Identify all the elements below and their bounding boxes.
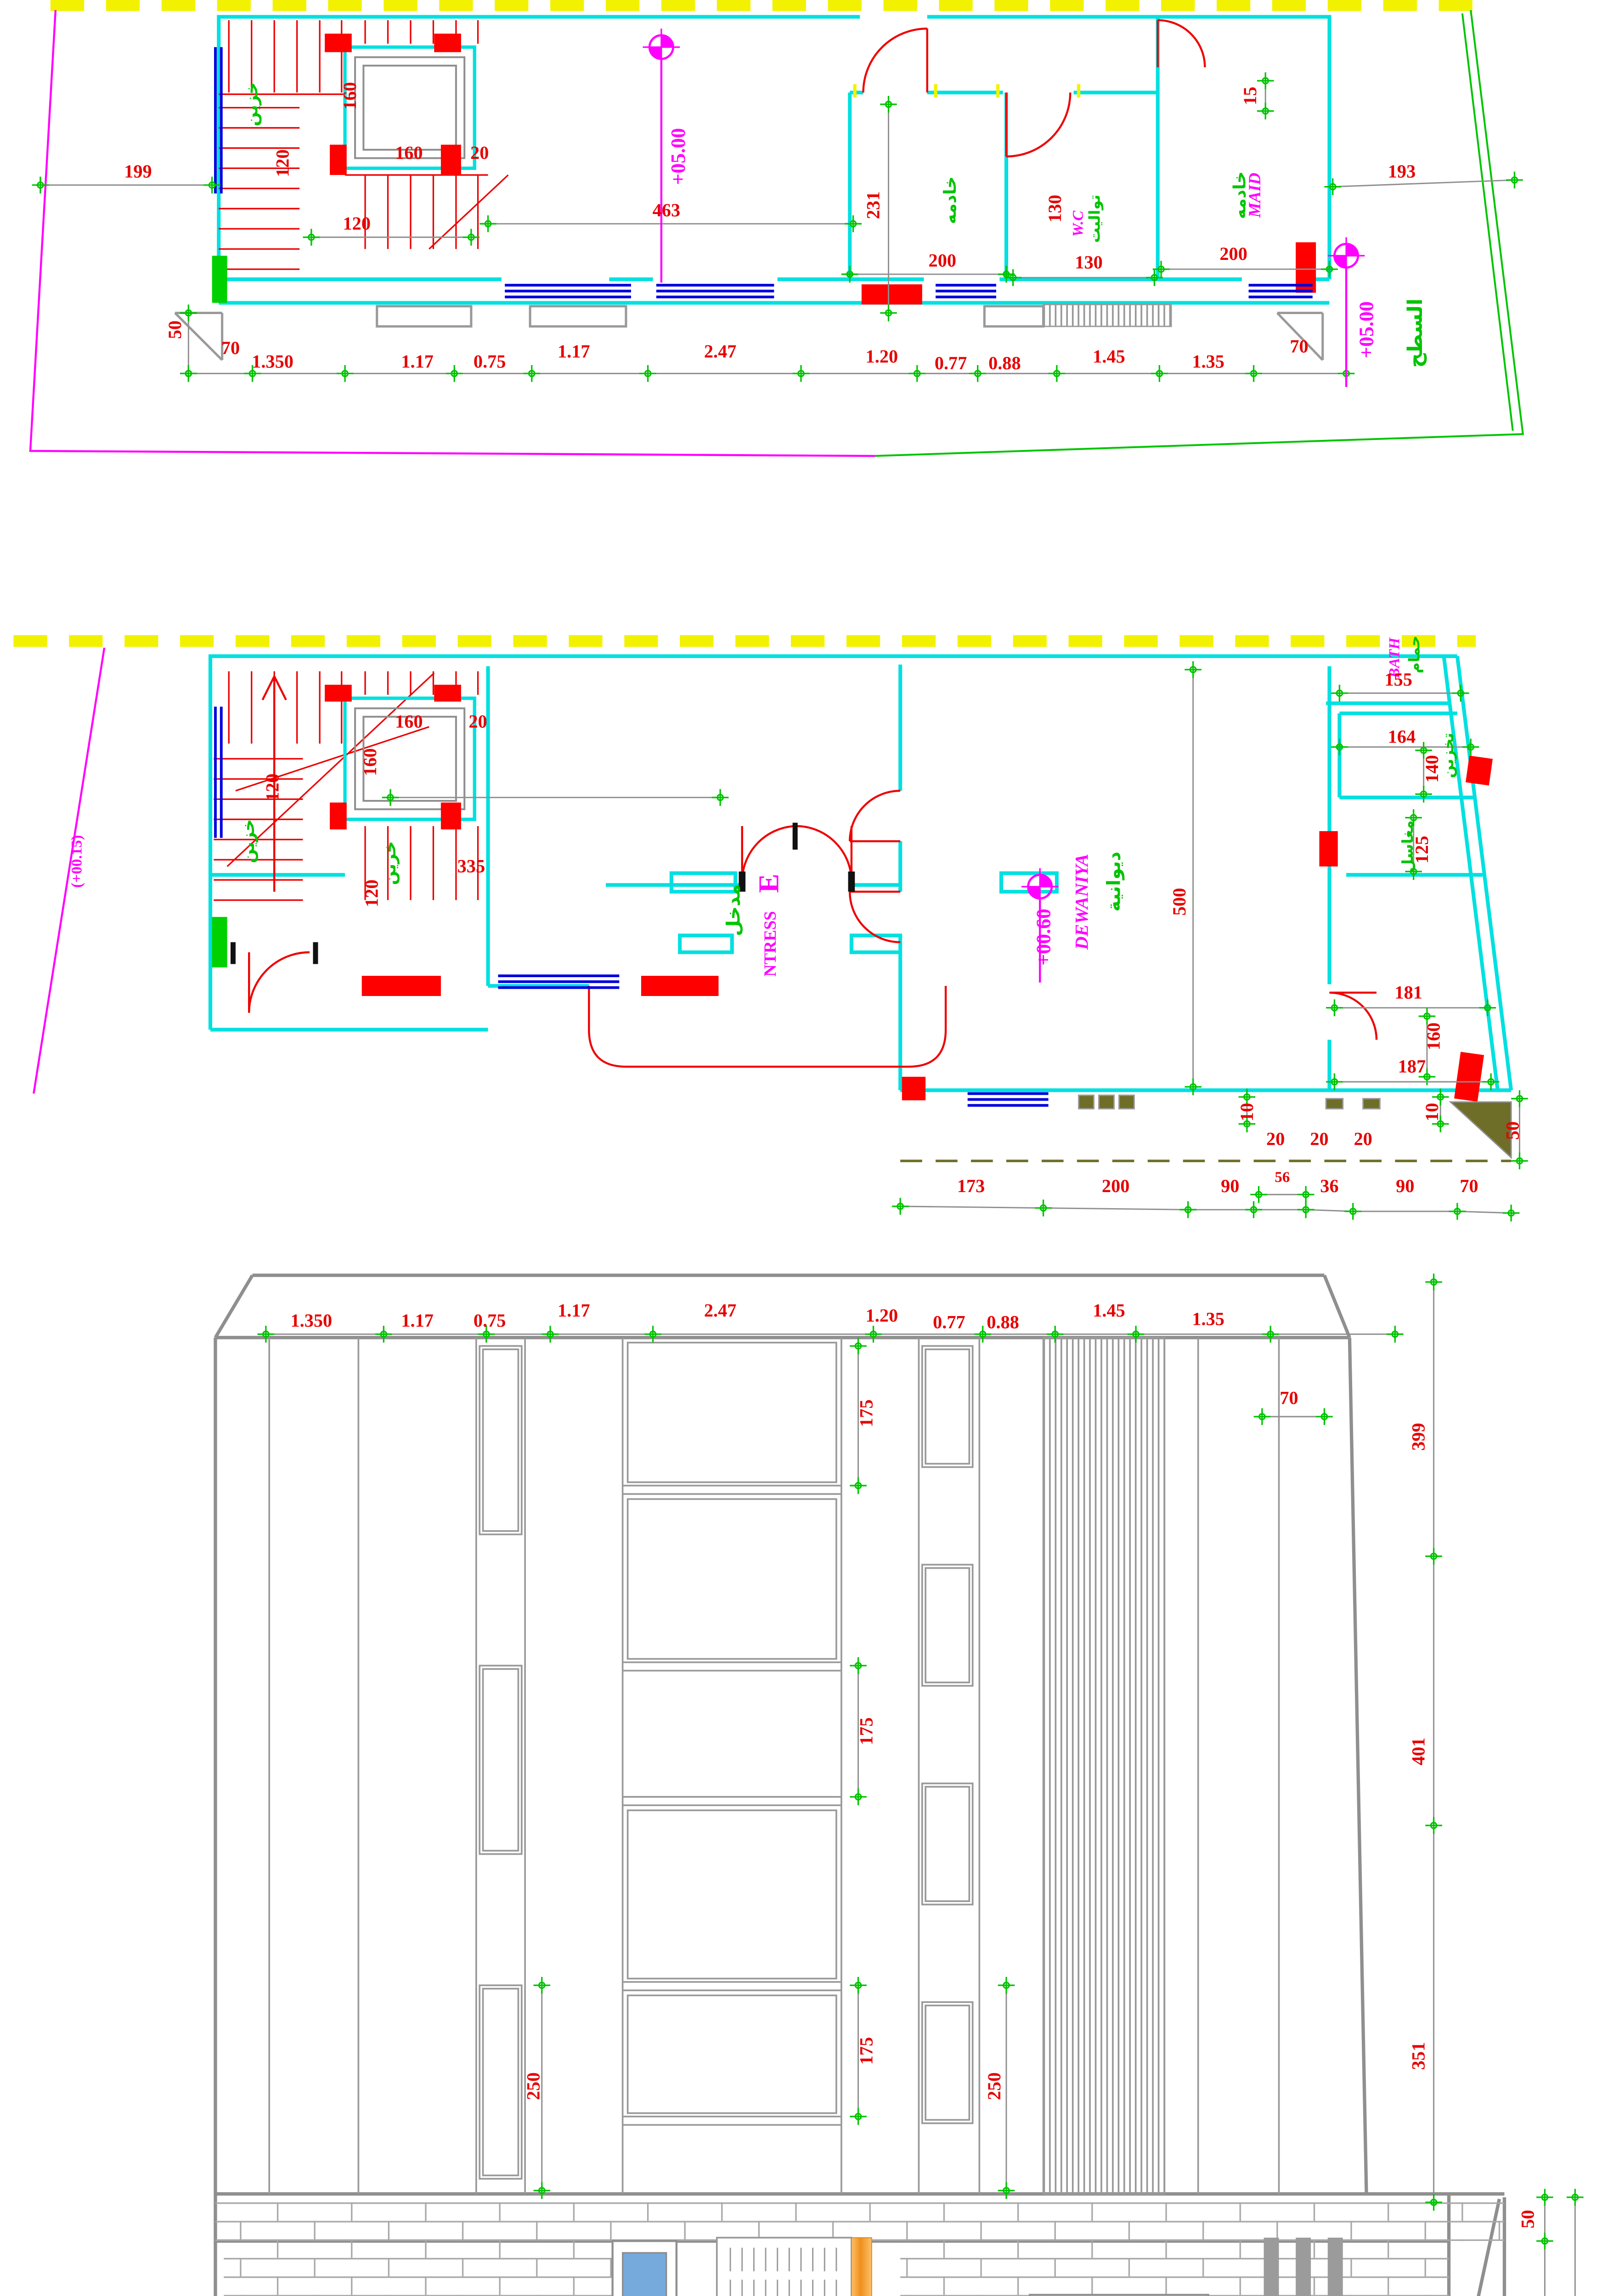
brick-left	[224, 2241, 619, 2296]
plot-line-green	[875, 10, 1523, 456]
orange-strip	[852, 2238, 872, 2296]
gf-windows	[215, 707, 1049, 1105]
gf-porch-outline	[589, 986, 946, 1067]
elev-louver-band	[1044, 1338, 1165, 2194]
elev-outline	[34, 1275, 1523, 2296]
elev-center-panels	[623, 1343, 841, 2125]
elev-left-panels	[479, 1346, 522, 2179]
front-elevation	[34, 1275, 1575, 2296]
gf-walls	[210, 656, 1511, 1090]
gf-doors	[249, 791, 1376, 1067]
elev-small-windows	[922, 1346, 973, 2123]
ground-floor-plan	[13, 641, 1519, 1213]
roof-walls	[219, 17, 1329, 303]
gray-bars	[1264, 2238, 1343, 2296]
elev-ground-floor	[215, 2202, 1505, 2296]
brick-right	[900, 2241, 1449, 2296]
roof-green-block	[212, 256, 227, 303]
gf-door-jambs	[231, 823, 855, 964]
roof-windows	[215, 47, 1313, 297]
gf-window-narrow	[613, 2241, 677, 2296]
plot-line-magenta	[30, 10, 875, 456]
roof-doors	[863, 20, 1205, 157]
brick-band	[215, 2202, 1505, 2241]
cad-sheet: 199193خزين16012016020120+05.00463231خادم…	[0, 0, 1602, 2296]
gf-elevator-shaft	[345, 698, 474, 820]
gf-green-block	[212, 917, 227, 968]
roof-plan	[30, 5, 1523, 456]
slat-panel	[717, 2238, 852, 2296]
plot-line-magenta-2	[34, 648, 104, 1094]
gf-columns	[325, 685, 1493, 1102]
drawing-canvas	[0, 0, 1602, 2296]
elev-dim-lines	[266, 1282, 1575, 2296]
roof-grill	[1044, 304, 1171, 326]
gf-dim-lines	[390, 670, 1519, 1213]
